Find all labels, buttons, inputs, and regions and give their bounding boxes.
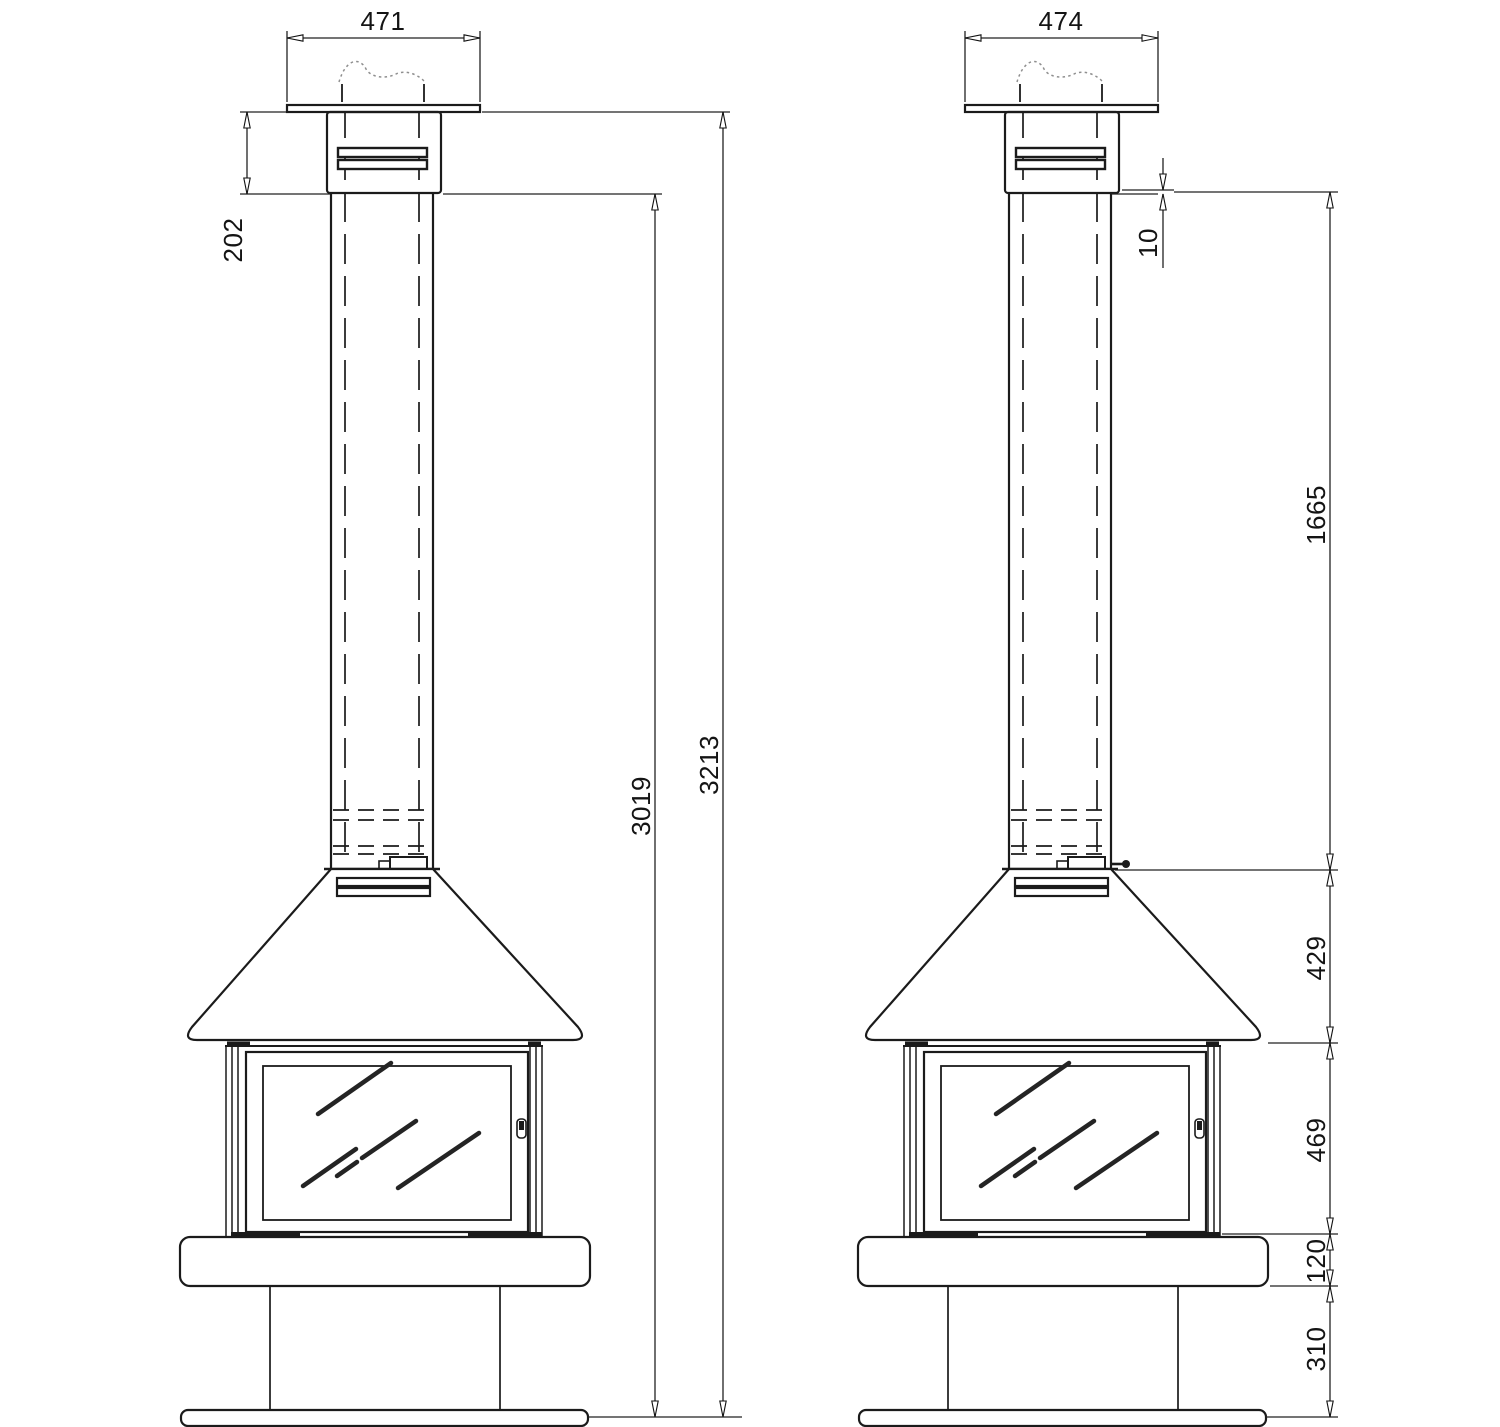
dim-side-cap-width: 474	[965, 6, 1158, 102]
arrow-right	[464, 35, 480, 41]
side-plinth-height-value: 120	[1301, 1239, 1331, 1284]
arrow-down	[652, 1401, 658, 1417]
side-hood-height-value: 429	[1301, 936, 1331, 981]
arrow-up	[1327, 870, 1333, 886]
side-cap-width-value: 474	[1039, 6, 1084, 36]
dim-side-hood-height: 429	[1268, 870, 1338, 1043]
dim-side-pedestal-height: 310	[1266, 1286, 1338, 1417]
arrow-up	[1327, 1286, 1333, 1302]
arrow-down	[720, 1401, 726, 1417]
arrow-up	[244, 112, 250, 128]
front-cap-width-value: 471	[361, 6, 406, 36]
side-view	[858, 61, 1268, 1426]
drawing-sheet: 471 202 3019 3213 474 10	[0, 0, 1500, 1427]
damper-lever	[1111, 860, 1130, 868]
front-body-height-value: 3019	[626, 776, 656, 836]
dim-side-firebox-height: 469	[1222, 1043, 1338, 1234]
arrow-down	[1327, 1218, 1333, 1234]
arrow-down	[1327, 854, 1333, 870]
side-pipe-inset-value: 10	[1133, 228, 1163, 258]
technical-drawing: 471 202 3019 3213 474 10	[0, 0, 1500, 1427]
front-view	[180, 61, 590, 1426]
arrow-down	[1327, 1027, 1333, 1043]
arrow-up	[652, 194, 658, 210]
dim-side-pipe-length: 1665	[1115, 192, 1338, 870]
arrow-down	[1160, 174, 1166, 190]
arrow-left	[287, 35, 303, 41]
side-firebox-height-value: 469	[1301, 1118, 1331, 1163]
arrow-up	[1160, 194, 1166, 210]
arrow-down	[1327, 1401, 1333, 1417]
side-pedestal-height-value: 310	[1301, 1327, 1331, 1372]
dim-front-cap-width: 471	[287, 6, 480, 102]
arrow-left	[965, 35, 981, 41]
dim-side-pipe-inset: 10	[1111, 158, 1174, 268]
arrow-right	[1142, 35, 1158, 41]
front-overall-height-value: 3213	[694, 735, 724, 795]
arrow-down	[244, 178, 250, 194]
arrow-up	[1327, 192, 1333, 208]
arrow-up	[1327, 1043, 1333, 1059]
front-cap-height-value: 202	[218, 218, 248, 263]
arrow-up	[720, 112, 726, 128]
dim-front-cap-height: 202	[218, 112, 330, 262]
side-pipe-length-value: 1665	[1301, 485, 1331, 545]
dim-side-plinth-height: 120	[1270, 1234, 1338, 1286]
